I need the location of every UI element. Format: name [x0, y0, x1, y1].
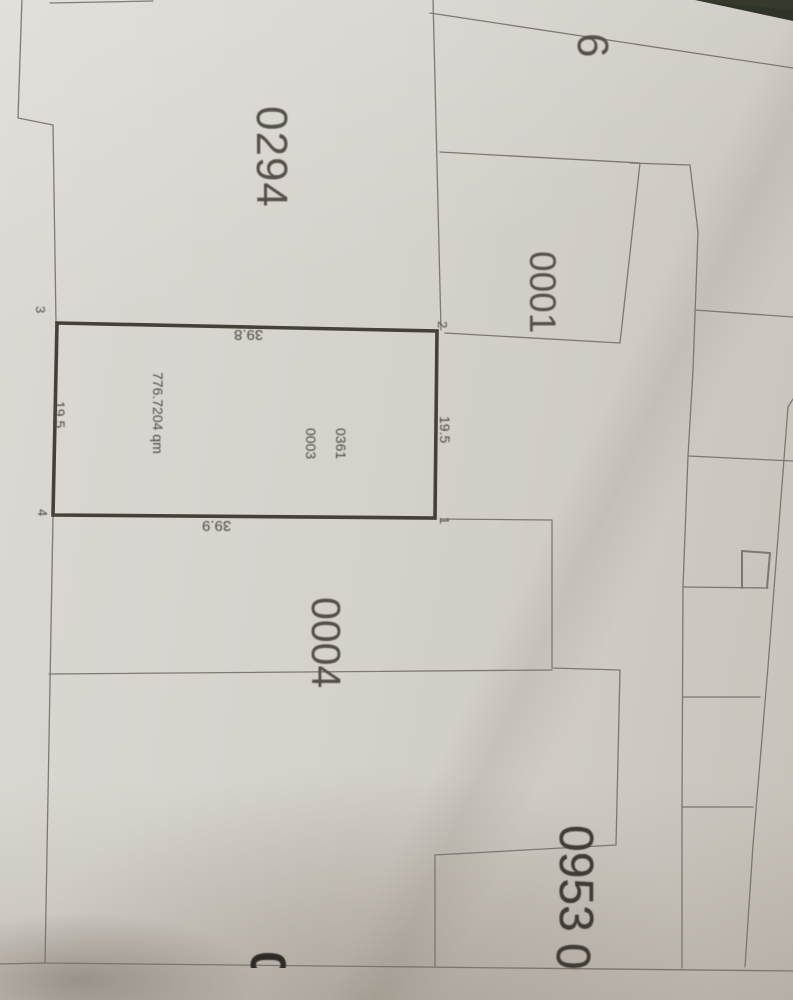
left-boundary-upper — [18, 0, 56, 323]
bottom-boundary-line — [0, 963, 793, 971]
corner-1-label: 1 — [438, 517, 451, 524]
area-label: 776.7204 qm — [151, 372, 165, 454]
partial-digit-bottom-center: 0 — [243, 951, 289, 968]
dimension-left-label: 19.5 — [53, 401, 67, 428]
cadastral-plan-photo: 0294 6 0001 0004 0953 0361 0003 776.7204… — [0, 0, 793, 1000]
right-branch-1 — [695, 310, 793, 317]
parcel-0003-label: 0003 — [304, 428, 318, 459]
top-left-stub-line — [50, 1, 153, 3]
flur-0361-label: 0361 — [334, 428, 348, 459]
parcel-0294-label: 0294 — [249, 106, 293, 208]
small-notch-parcel — [742, 551, 770, 588]
parcel-0004-bottom-line — [49, 670, 552, 674]
partial-digit-glyph: 0 — [548, 943, 594, 970]
parcel-6-label: 6 — [570, 33, 614, 57]
boundary-lines-svg — [0, 0, 793, 1000]
right-main-boundary — [630, 163, 698, 968]
corner-4-label: 4 — [36, 509, 49, 516]
corner-2-label: 2 — [436, 321, 449, 328]
partial-digit-glyph: 0 — [243, 951, 289, 968]
right-branch-3 — [683, 587, 768, 588]
right-edge-slant-boundary — [745, 399, 793, 967]
partial-digit-below-0953: 0 — [548, 943, 594, 970]
dimension-top-label: 39.8 — [234, 327, 263, 342]
parcel-0004-label: 0004 — [305, 597, 346, 688]
dimension-bottom-label: 39.9 — [202, 518, 231, 533]
center-vertical-divider — [433, 0, 441, 330]
parcel-0001-label: 0001 — [524, 251, 561, 333]
right-branch-2 — [688, 456, 793, 461]
parcel-0953-label: 0953 — [551, 825, 599, 932]
corner-3-label: 3 — [34, 306, 47, 313]
dimension-right-label: 19.5 — [438, 416, 452, 443]
left-boundary-lower — [45, 516, 53, 963]
subject-parcel-outline — [53, 323, 437, 518]
